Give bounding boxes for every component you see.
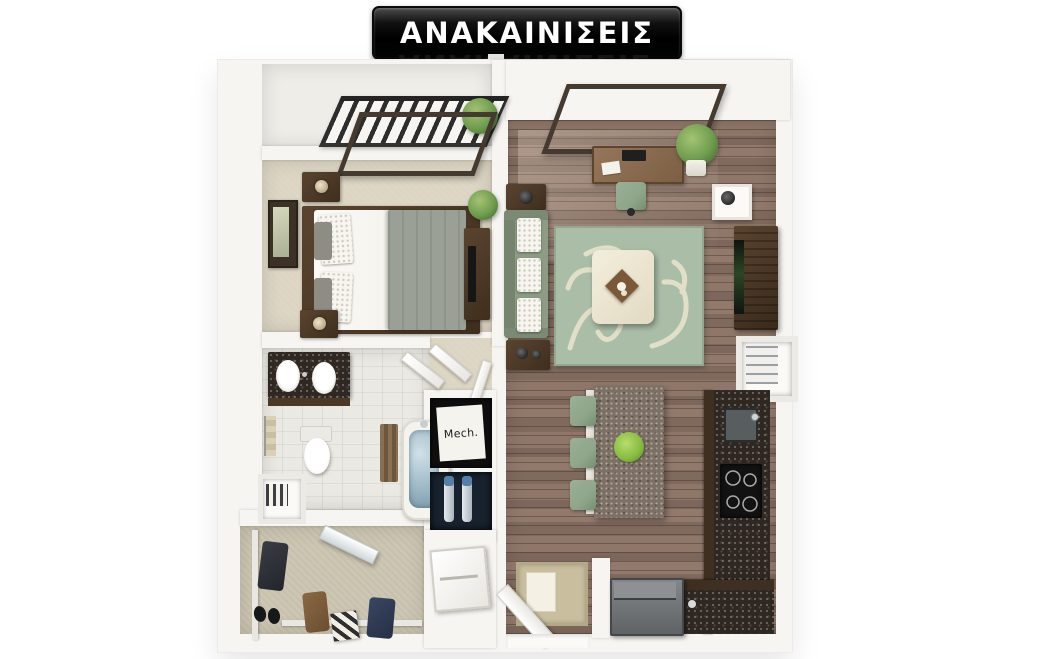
bar-chair-3: [570, 480, 596, 510]
sofa-cushion-2: [517, 258, 541, 292]
linen-towels: [266, 484, 288, 506]
bed-blanket: [388, 210, 466, 330]
washer-seam: [440, 574, 478, 580]
floor-plan: Mech.: [218, 60, 792, 652]
entry-threshold: [506, 634, 590, 648]
vanity-sink-left: [276, 360, 300, 392]
cooktop-burners: [720, 464, 762, 518]
bar-chair-2: [570, 438, 596, 468]
wall-entry-kitchen: [592, 558, 610, 638]
nightstand-lamp-top: [315, 180, 328, 193]
vanity-sink-right: [312, 362, 336, 394]
sofa-cushion-1: [517, 218, 541, 252]
heater-cap-2: [462, 476, 472, 486]
sofa-lamp-top: [519, 190, 533, 204]
sofa-end-table-top: [506, 184, 546, 210]
kitchen-sink: [724, 408, 758, 442]
vanity-cabinet-front: [268, 398, 350, 406]
living-corner-plant-pot: [686, 160, 706, 176]
nightstand-lamp-bottom: [313, 317, 326, 330]
kitchen-cabinet-front-bottom: [680, 580, 774, 590]
bedroom-french-door: [336, 112, 497, 176]
striped-basket: [330, 610, 360, 641]
sofa-cushion-3: [517, 298, 541, 332]
bedroom-tv: [468, 246, 476, 302]
sofa-end-table-bottom: [506, 340, 550, 370]
cooktop: [720, 464, 762, 518]
sink-faucet: [752, 414, 758, 420]
refrigerator-top-panel: [614, 582, 676, 600]
tub-faucet: [420, 420, 428, 428]
corner-faucet: [688, 600, 696, 608]
desk-monitor: [622, 150, 646, 161]
title-text: ΑΝΑΚΑΙΝΙΣΕΙΣ: [400, 16, 654, 50]
tray-cup-2: [621, 290, 627, 296]
hanging-clothes-brown: [302, 591, 330, 633]
title-banner: ΑΝΑΚΑΙΝΙΣΕΙΣ: [372, 6, 682, 60]
mech-closet: Mech.: [430, 398, 492, 468]
kitchen-counter-bottom: [680, 590, 774, 634]
wall-bedroom-bathroom: [262, 332, 430, 348]
toilet-bowl: [304, 438, 330, 474]
television: [734, 240, 744, 314]
mech-label: Mech.: [436, 404, 486, 461]
desk-papers: [601, 161, 620, 175]
end-table-decor-2: [532, 350, 541, 359]
shelf-decor: [721, 191, 735, 205]
bedroom-plant: [468, 190, 498, 220]
island-plant: [614, 432, 644, 462]
washer-unit: [429, 546, 490, 613]
bed-accent-pillow-1: [314, 222, 332, 260]
scene: ΑΝΑΚΑΙΝΙΣΕΙΣ ΑΝΑΚΑΙΝΙΣΕΙΣ: [0, 0, 1050, 659]
heater-cap-1: [444, 476, 454, 486]
vanity-faucet: [302, 372, 307, 377]
doormat-plate: [526, 572, 556, 612]
wire-shelves: [746, 344, 778, 384]
mech-unit: Mech.: [436, 404, 486, 461]
desk-chair-base: [627, 208, 635, 216]
bar-chair-1: [570, 396, 596, 426]
water-heater-closet: [430, 472, 492, 530]
wall-art-print: [273, 207, 289, 257]
towel-rack: [264, 416, 276, 456]
sofa-backrest: [504, 210, 515, 338]
bath-mat: [380, 424, 398, 482]
desk-chair: [616, 182, 646, 210]
hanging-clothes-navy: [366, 597, 395, 639]
end-table-decor-1: [516, 347, 528, 359]
